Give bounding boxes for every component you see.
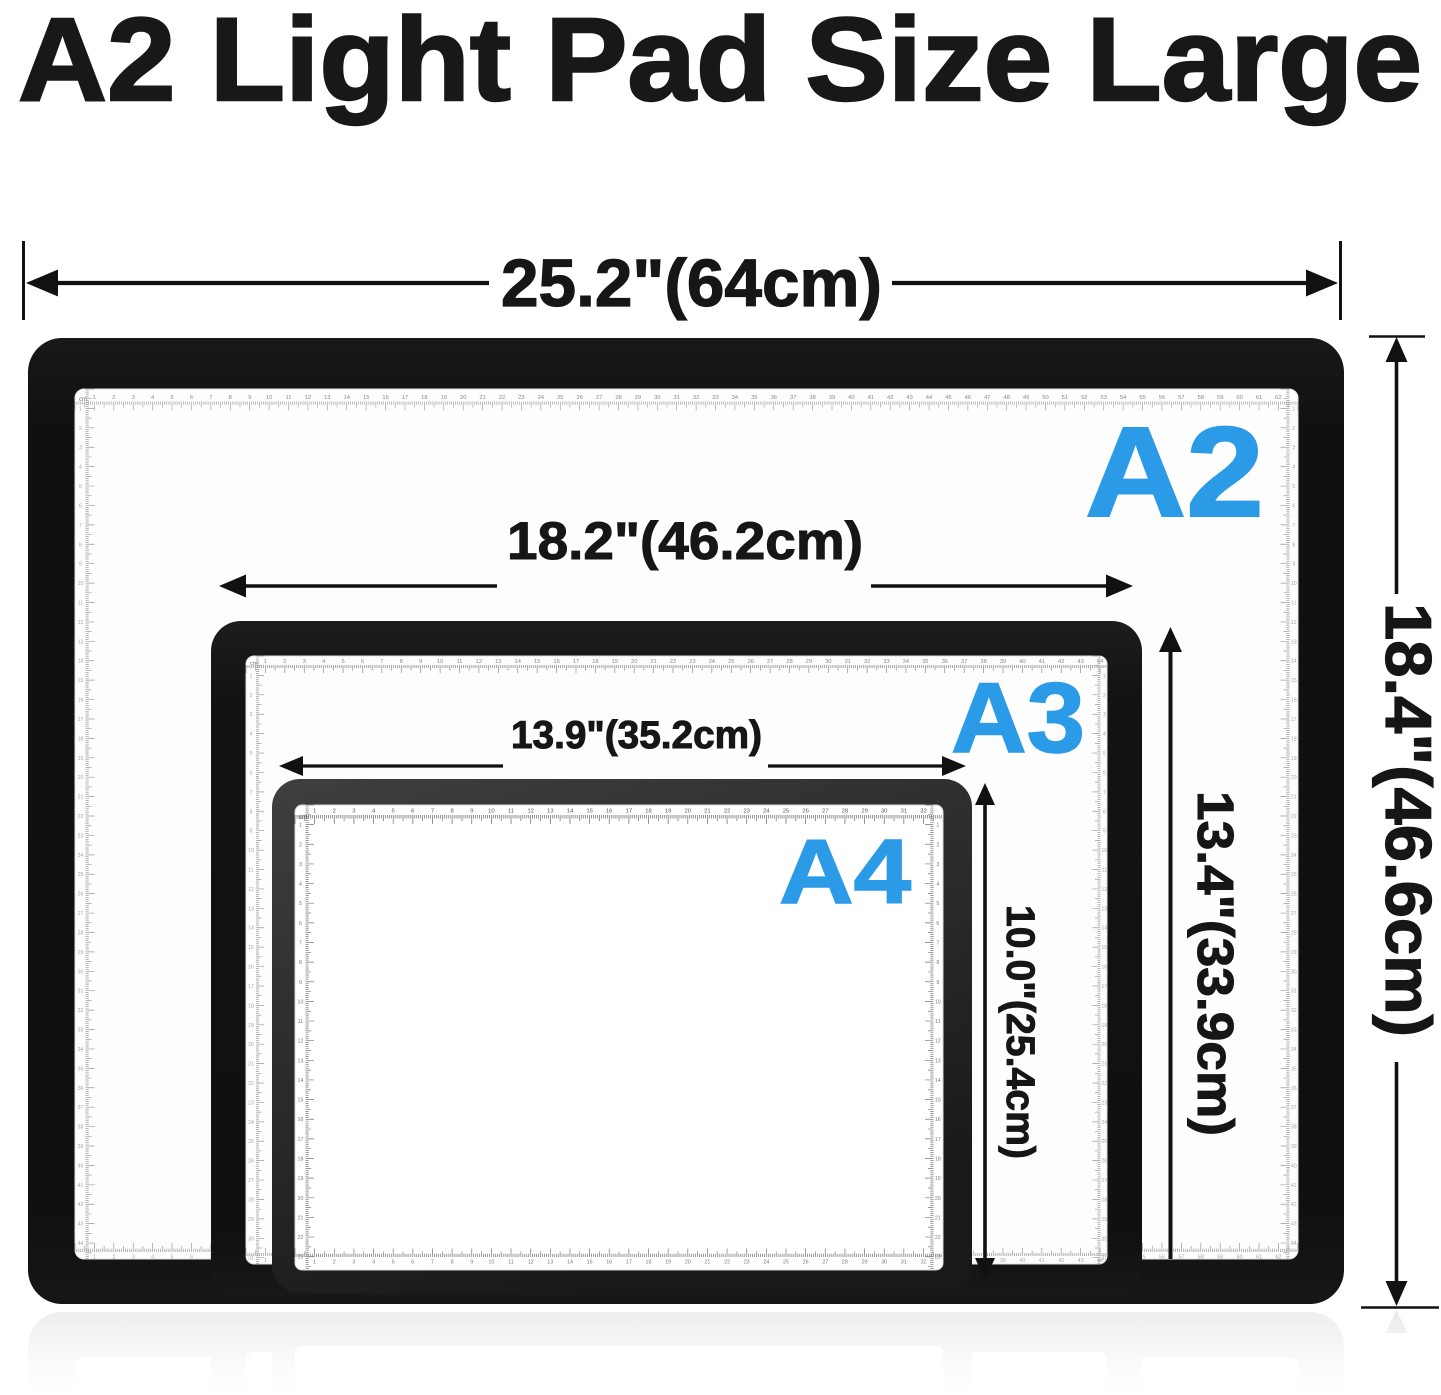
svg-text:12: 12 xyxy=(476,659,482,665)
svg-text:24: 24 xyxy=(248,1120,254,1126)
svg-text:7: 7 xyxy=(431,809,434,815)
svg-text:5: 5 xyxy=(936,901,939,907)
svg-text:6: 6 xyxy=(190,1255,193,1261)
svg-text:26: 26 xyxy=(1291,892,1297,898)
svg-text:60: 60 xyxy=(1237,1255,1243,1261)
svg-text:20: 20 xyxy=(631,659,637,665)
svg-text:23: 23 xyxy=(78,833,84,839)
svg-text:16: 16 xyxy=(248,965,254,971)
svg-text:36: 36 xyxy=(942,659,948,665)
svg-text:16: 16 xyxy=(298,1117,304,1123)
svg-text:7: 7 xyxy=(209,395,212,401)
svg-text:13: 13 xyxy=(935,1058,941,1064)
svg-text:3: 3 xyxy=(303,659,306,665)
svg-text:9: 9 xyxy=(248,395,251,401)
svg-text:11: 11 xyxy=(456,659,462,665)
svg-text:2: 2 xyxy=(1292,426,1295,432)
svg-text:28: 28 xyxy=(1291,931,1297,937)
svg-text:46: 46 xyxy=(965,395,971,401)
svg-text:17: 17 xyxy=(935,1137,941,1143)
svg-text:28: 28 xyxy=(615,395,621,401)
svg-text:5: 5 xyxy=(170,395,173,401)
svg-text:50: 50 xyxy=(1042,395,1048,401)
svg-text:12: 12 xyxy=(935,1039,941,1045)
svg-text:15: 15 xyxy=(1101,945,1107,951)
svg-text:25: 25 xyxy=(248,1139,254,1145)
svg-text:15: 15 xyxy=(534,659,540,665)
svg-text:34: 34 xyxy=(78,1047,84,1053)
svg-text:16: 16 xyxy=(606,809,613,815)
svg-text:21: 21 xyxy=(704,809,711,815)
svg-text:6: 6 xyxy=(250,771,253,777)
svg-text:2: 2 xyxy=(1103,693,1106,699)
svg-text:2: 2 xyxy=(79,426,82,432)
svg-text:24: 24 xyxy=(78,853,84,859)
svg-text:27: 27 xyxy=(1291,911,1297,917)
svg-text:7: 7 xyxy=(380,659,383,665)
svg-text:21: 21 xyxy=(935,1215,941,1221)
svg-text:14: 14 xyxy=(78,659,84,665)
svg-text:11: 11 xyxy=(935,1019,941,1025)
svg-text:8: 8 xyxy=(79,542,82,548)
svg-text:14: 14 xyxy=(343,395,350,401)
svg-text:44: 44 xyxy=(1097,1258,1103,1264)
svg-text:23: 23 xyxy=(744,1260,750,1266)
svg-text:28: 28 xyxy=(1101,1198,1107,1204)
svg-text:39: 39 xyxy=(829,395,835,401)
svg-text:25: 25 xyxy=(557,395,563,401)
svg-text:41: 41 xyxy=(1039,1258,1045,1264)
svg-text:3: 3 xyxy=(250,712,253,718)
svg-text:5: 5 xyxy=(1103,751,1106,757)
svg-text:33: 33 xyxy=(78,1028,84,1034)
svg-text:4: 4 xyxy=(1103,732,1106,738)
svg-text:33: 33 xyxy=(712,395,718,401)
svg-text:7: 7 xyxy=(299,941,302,947)
svg-text:26: 26 xyxy=(802,809,809,815)
svg-text:3: 3 xyxy=(132,395,135,401)
svg-text:29: 29 xyxy=(78,950,84,956)
svg-text:15: 15 xyxy=(935,1098,941,1104)
svg-text:6: 6 xyxy=(361,659,364,665)
svg-text:3: 3 xyxy=(352,1260,355,1266)
svg-text:23: 23 xyxy=(248,1100,254,1106)
svg-text:7: 7 xyxy=(936,941,939,947)
svg-text:35: 35 xyxy=(78,1066,84,1072)
svg-text:28: 28 xyxy=(248,1198,254,1204)
svg-text:5: 5 xyxy=(79,484,82,490)
svg-text:11: 11 xyxy=(1291,601,1296,607)
svg-text:31: 31 xyxy=(901,809,908,815)
svg-text:25: 25 xyxy=(1101,1139,1107,1145)
svg-text:19: 19 xyxy=(612,659,618,665)
svg-text:8: 8 xyxy=(250,809,253,815)
svg-text:22: 22 xyxy=(248,1081,254,1087)
svg-text:15: 15 xyxy=(78,678,84,684)
svg-text:7: 7 xyxy=(1292,523,1295,529)
svg-text:41: 41 xyxy=(1291,1183,1297,1189)
svg-text:8: 8 xyxy=(229,395,232,401)
svg-text:30: 30 xyxy=(825,659,831,665)
svg-text:26: 26 xyxy=(1101,1159,1107,1165)
svg-text:7: 7 xyxy=(431,1260,434,1266)
svg-text:38: 38 xyxy=(78,1125,84,1131)
svg-text:44: 44 xyxy=(78,1241,84,1247)
svg-text:16: 16 xyxy=(935,1117,941,1123)
svg-text:27: 27 xyxy=(767,659,773,665)
svg-text:59: 59 xyxy=(1217,1255,1223,1261)
svg-text:32: 32 xyxy=(864,659,870,665)
svg-text:22: 22 xyxy=(78,814,84,820)
svg-text:6: 6 xyxy=(79,504,82,510)
svg-text:1: 1 xyxy=(264,659,267,665)
svg-text:20: 20 xyxy=(935,1196,941,1202)
svg-text:32: 32 xyxy=(78,1008,84,1014)
svg-text:36: 36 xyxy=(78,1086,84,1092)
svg-text:18: 18 xyxy=(646,1260,652,1266)
svg-text:26: 26 xyxy=(576,395,582,401)
svg-text:44: 44 xyxy=(1291,1241,1297,1247)
svg-text:20: 20 xyxy=(460,395,466,401)
svg-text:16: 16 xyxy=(382,395,388,401)
svg-text:29: 29 xyxy=(806,659,812,665)
svg-text:14: 14 xyxy=(567,1260,573,1266)
svg-text:29: 29 xyxy=(862,1260,868,1266)
svg-text:28: 28 xyxy=(786,659,792,665)
svg-text:28: 28 xyxy=(842,809,849,815)
svg-text:10: 10 xyxy=(488,1260,494,1266)
svg-text:25: 25 xyxy=(783,809,790,815)
svg-text:3: 3 xyxy=(1292,445,1295,451)
svg-text:21: 21 xyxy=(248,1062,254,1068)
svg-text:8: 8 xyxy=(936,960,939,966)
svg-text:21: 21 xyxy=(78,795,84,801)
svg-text:16: 16 xyxy=(553,659,559,665)
svg-text:26: 26 xyxy=(747,659,753,665)
svg-text:22: 22 xyxy=(499,395,505,401)
svg-text:41: 41 xyxy=(78,1183,84,1189)
svg-text:17: 17 xyxy=(1291,717,1297,723)
svg-text:12: 12 xyxy=(248,887,254,893)
svg-text:11: 11 xyxy=(1102,868,1107,874)
svg-text:29: 29 xyxy=(861,809,868,815)
svg-text:43: 43 xyxy=(1078,1258,1084,1264)
svg-text:44: 44 xyxy=(926,395,933,401)
svg-text:3: 3 xyxy=(936,862,939,868)
svg-text:34: 34 xyxy=(903,659,910,665)
svg-text:18: 18 xyxy=(935,1157,941,1163)
svg-text:12: 12 xyxy=(305,395,311,401)
svg-text:27: 27 xyxy=(596,395,602,401)
svg-text:17: 17 xyxy=(573,659,579,665)
svg-text:25: 25 xyxy=(728,659,734,665)
svg-text:37: 37 xyxy=(1291,1105,1297,1111)
svg-text:6: 6 xyxy=(299,921,302,927)
svg-text:24: 24 xyxy=(709,659,716,665)
svg-text:1: 1 xyxy=(93,1255,96,1261)
svg-text:19: 19 xyxy=(298,1176,304,1182)
svg-text:19: 19 xyxy=(665,809,672,815)
svg-text:8: 8 xyxy=(400,659,403,665)
svg-text:21: 21 xyxy=(1291,795,1297,801)
svg-text:4: 4 xyxy=(372,1260,375,1266)
svg-text:10: 10 xyxy=(1291,581,1297,587)
svg-text:1: 1 xyxy=(299,823,302,829)
svg-text:17: 17 xyxy=(626,1260,632,1266)
svg-text:42: 42 xyxy=(887,395,893,401)
svg-text:32: 32 xyxy=(921,1260,927,1266)
svg-text:37: 37 xyxy=(790,395,796,401)
svg-text:17: 17 xyxy=(1101,984,1107,990)
svg-text:41: 41 xyxy=(868,395,874,401)
svg-text:25: 25 xyxy=(1291,872,1297,878)
svg-text:12: 12 xyxy=(528,1260,534,1266)
svg-text:36: 36 xyxy=(1291,1086,1297,1092)
svg-text:2: 2 xyxy=(333,1260,336,1266)
svg-text:13: 13 xyxy=(248,906,254,912)
svg-text:5: 5 xyxy=(1292,484,1295,490)
svg-text:62: 62 xyxy=(1275,395,1281,401)
svg-text:16: 16 xyxy=(1101,965,1107,971)
svg-text:24: 24 xyxy=(1101,1120,1107,1126)
svg-text:20: 20 xyxy=(1291,775,1297,781)
svg-text:21: 21 xyxy=(1101,1062,1107,1068)
svg-text:43: 43 xyxy=(78,1222,84,1228)
svg-text:12: 12 xyxy=(1291,620,1297,626)
svg-text:8: 8 xyxy=(1103,809,1106,815)
svg-text:42: 42 xyxy=(1291,1202,1297,1208)
svg-text:22: 22 xyxy=(724,1260,730,1266)
svg-text:4: 4 xyxy=(250,732,253,738)
svg-text:16: 16 xyxy=(1291,698,1297,704)
svg-text:34: 34 xyxy=(1291,1047,1297,1053)
svg-text:15: 15 xyxy=(587,1260,593,1266)
svg-text:19: 19 xyxy=(441,395,447,401)
svg-text:13: 13 xyxy=(78,639,84,645)
svg-text:27: 27 xyxy=(248,1178,254,1184)
svg-text:7: 7 xyxy=(1103,790,1106,796)
svg-text:31: 31 xyxy=(78,989,84,995)
svg-text:40: 40 xyxy=(78,1163,84,1169)
svg-text:9: 9 xyxy=(299,980,302,986)
svg-text:2: 2 xyxy=(299,842,302,848)
svg-text:15: 15 xyxy=(1291,678,1297,684)
svg-text:10: 10 xyxy=(437,659,443,665)
svg-text:16: 16 xyxy=(78,698,84,704)
svg-text:5: 5 xyxy=(299,901,302,907)
svg-text:1: 1 xyxy=(250,673,253,679)
svg-text:45: 45 xyxy=(945,395,951,401)
svg-text:30: 30 xyxy=(1101,1236,1107,1242)
svg-text:19: 19 xyxy=(935,1176,941,1182)
svg-text:22: 22 xyxy=(670,659,676,665)
svg-text:58: 58 xyxy=(1198,1255,1204,1261)
svg-text:23: 23 xyxy=(1101,1100,1107,1106)
svg-text:28: 28 xyxy=(842,1260,848,1266)
svg-text:26: 26 xyxy=(803,1260,809,1266)
svg-text:27: 27 xyxy=(1101,1178,1107,1184)
svg-text:36: 36 xyxy=(771,395,777,401)
svg-text:8: 8 xyxy=(299,960,302,966)
svg-text:29: 29 xyxy=(635,395,641,401)
svg-text:19: 19 xyxy=(248,1023,254,1029)
svg-text:10: 10 xyxy=(266,395,272,401)
svg-text:31: 31 xyxy=(673,395,679,401)
svg-text:21: 21 xyxy=(479,395,485,401)
svg-text:13.4"(33.9cm): 13.4"(33.9cm) xyxy=(1187,791,1244,1136)
svg-text:4: 4 xyxy=(299,882,302,888)
svg-text:11: 11 xyxy=(298,1019,304,1025)
svg-text:37: 37 xyxy=(78,1105,84,1111)
svg-text:9: 9 xyxy=(470,809,473,815)
svg-text:15: 15 xyxy=(363,395,369,401)
svg-text:18: 18 xyxy=(248,1003,254,1009)
svg-text:42: 42 xyxy=(1058,1258,1064,1264)
svg-text:22: 22 xyxy=(1291,814,1297,820)
svg-text:21: 21 xyxy=(650,659,656,665)
svg-text:6: 6 xyxy=(936,921,939,927)
svg-text:29: 29 xyxy=(1101,1217,1107,1223)
svg-text:23: 23 xyxy=(518,395,524,401)
svg-text:20: 20 xyxy=(685,809,692,815)
svg-text:40: 40 xyxy=(1019,1258,1025,1264)
svg-text:9: 9 xyxy=(419,659,422,665)
svg-text:18: 18 xyxy=(78,736,84,742)
svg-text:30: 30 xyxy=(654,395,660,401)
svg-text:31: 31 xyxy=(248,1256,254,1262)
svg-text:20: 20 xyxy=(298,1196,304,1202)
svg-text:49: 49 xyxy=(1023,395,1029,401)
svg-text:35: 35 xyxy=(1291,1066,1297,1072)
svg-text:24: 24 xyxy=(1291,853,1297,859)
svg-text:34: 34 xyxy=(732,395,739,401)
svg-text:9: 9 xyxy=(79,562,82,568)
svg-text:11: 11 xyxy=(508,809,514,815)
svg-text:18: 18 xyxy=(1291,736,1297,742)
svg-text:13: 13 xyxy=(1101,906,1107,912)
svg-text:1: 1 xyxy=(313,809,316,815)
svg-text:27: 27 xyxy=(822,1260,828,1266)
svg-text:11: 11 xyxy=(285,395,291,401)
svg-text:13: 13 xyxy=(547,1260,553,1266)
svg-text:35: 35 xyxy=(922,659,928,665)
svg-text:22: 22 xyxy=(1101,1081,1107,1087)
svg-text:30: 30 xyxy=(78,969,84,975)
svg-text:25: 25 xyxy=(78,872,84,878)
svg-text:43: 43 xyxy=(906,395,912,401)
svg-text:15: 15 xyxy=(298,1098,304,1104)
svg-text:31: 31 xyxy=(844,659,850,665)
svg-text:30: 30 xyxy=(881,1260,887,1266)
svg-text:2: 2 xyxy=(333,809,336,815)
svg-text:32: 32 xyxy=(1291,1008,1297,1014)
svg-text:A2: A2 xyxy=(1085,401,1264,544)
svg-text:13: 13 xyxy=(298,1058,304,1064)
svg-text:30: 30 xyxy=(1291,969,1297,975)
svg-text:14: 14 xyxy=(1101,926,1107,932)
svg-text:22: 22 xyxy=(724,809,731,815)
svg-text:38: 38 xyxy=(1291,1125,1297,1131)
svg-text:13: 13 xyxy=(495,659,501,665)
svg-text:10: 10 xyxy=(298,999,304,1005)
svg-text:4: 4 xyxy=(151,1255,154,1261)
svg-text:7: 7 xyxy=(250,790,253,796)
svg-text:10: 10 xyxy=(248,848,254,854)
svg-text:51: 51 xyxy=(1062,395,1068,401)
svg-text:9: 9 xyxy=(250,829,253,835)
svg-text:17: 17 xyxy=(298,1137,304,1143)
svg-text:9: 9 xyxy=(470,1260,473,1266)
svg-text:61: 61 xyxy=(1256,1255,1262,1261)
svg-text:A3: A3 xyxy=(951,662,1085,773)
svg-text:2: 2 xyxy=(112,395,115,401)
svg-text:2: 2 xyxy=(112,1255,115,1261)
svg-text:23: 23 xyxy=(935,1255,941,1261)
svg-text:17: 17 xyxy=(248,984,254,990)
svg-text:9: 9 xyxy=(936,980,939,986)
svg-text:14: 14 xyxy=(1291,659,1297,665)
svg-text:18: 18 xyxy=(592,659,598,665)
svg-text:56: 56 xyxy=(1159,1255,1165,1261)
svg-text:15: 15 xyxy=(248,945,254,951)
svg-text:5: 5 xyxy=(392,1260,395,1266)
svg-text:18.4"(46.6cm): 18.4"(46.6cm) xyxy=(1372,603,1441,1037)
svg-text:4: 4 xyxy=(1292,465,1295,471)
svg-text:20: 20 xyxy=(685,1260,691,1266)
svg-text:20: 20 xyxy=(78,775,84,781)
svg-text:7: 7 xyxy=(79,523,82,529)
svg-text:10: 10 xyxy=(1101,848,1107,854)
svg-text:18.2"(46.2cm): 18.2"(46.2cm) xyxy=(507,512,863,571)
svg-text:47: 47 xyxy=(984,395,990,401)
svg-text:23: 23 xyxy=(743,809,750,815)
svg-text:5: 5 xyxy=(341,659,344,665)
svg-text:26: 26 xyxy=(78,892,84,898)
svg-text:5: 5 xyxy=(250,751,253,757)
svg-text:23: 23 xyxy=(689,659,695,665)
svg-text:12: 12 xyxy=(298,1039,304,1045)
svg-text:24: 24 xyxy=(763,809,770,815)
svg-text:21: 21 xyxy=(298,1215,304,1221)
svg-text:6: 6 xyxy=(1103,771,1106,777)
svg-text:3: 3 xyxy=(299,862,302,868)
svg-text:14: 14 xyxy=(935,1078,941,1084)
svg-text:48: 48 xyxy=(1003,395,1009,401)
svg-text:28: 28 xyxy=(78,931,84,937)
svg-text:11: 11 xyxy=(508,1260,514,1266)
svg-text:21: 21 xyxy=(704,1260,710,1266)
svg-text:11: 11 xyxy=(78,601,83,607)
svg-text:35: 35 xyxy=(751,395,757,401)
svg-text:11: 11 xyxy=(248,868,253,874)
svg-text:1: 1 xyxy=(93,395,96,401)
svg-text:22: 22 xyxy=(935,1235,941,1241)
svg-text:19: 19 xyxy=(78,756,84,762)
svg-text:18: 18 xyxy=(645,809,652,815)
svg-text:1: 1 xyxy=(313,1260,316,1266)
svg-text:3: 3 xyxy=(79,445,82,451)
svg-text:57: 57 xyxy=(1178,1255,1184,1261)
svg-text:30: 30 xyxy=(248,1236,254,1242)
svg-text:43: 43 xyxy=(1291,1222,1297,1228)
svg-text:30: 30 xyxy=(881,809,888,815)
svg-text:25.2"(64cm): 25.2"(64cm) xyxy=(501,246,882,321)
svg-text:38: 38 xyxy=(809,395,815,401)
svg-text:8: 8 xyxy=(451,1260,454,1266)
svg-text:40: 40 xyxy=(1291,1163,1297,1169)
svg-text:1: 1 xyxy=(1103,673,1106,679)
svg-text:17: 17 xyxy=(402,395,408,401)
